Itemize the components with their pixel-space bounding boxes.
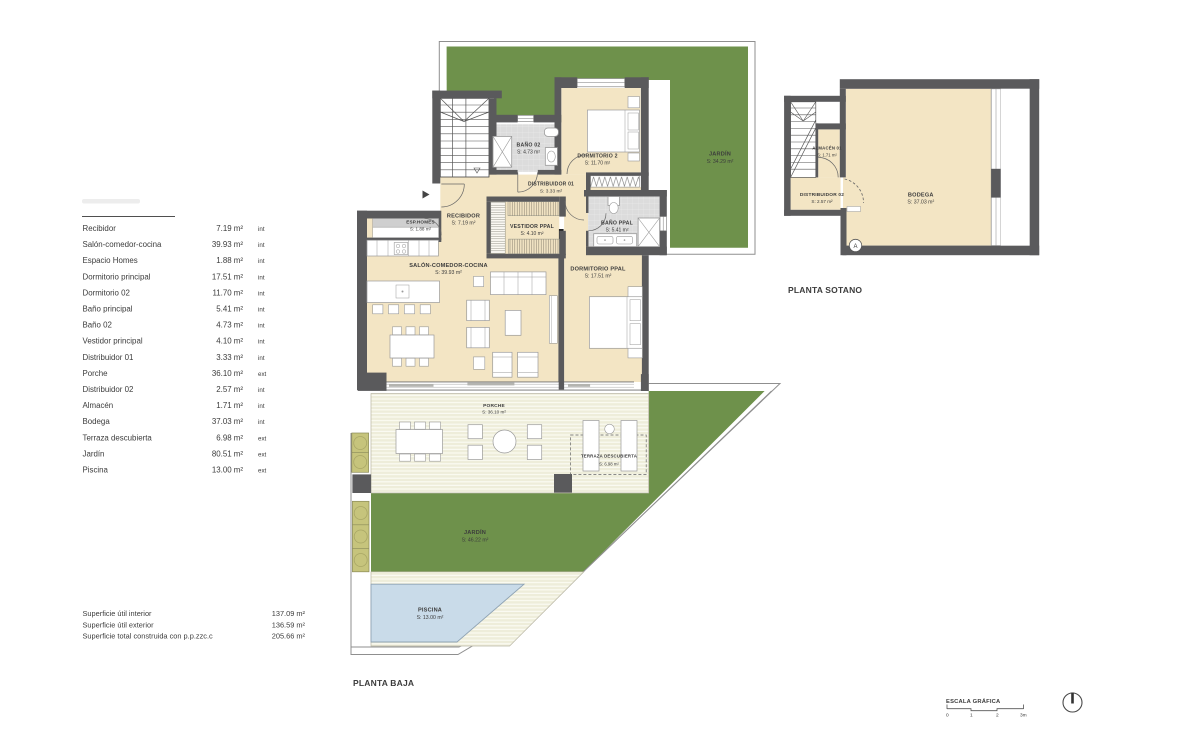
svg-text:S: 39.93 m²: S: 39.93 m² bbox=[435, 270, 462, 276]
svg-text:int: int bbox=[258, 274, 265, 281]
svg-text:5.41 m²: 5.41 m² bbox=[216, 305, 243, 314]
svg-text:int: int bbox=[258, 290, 265, 297]
svg-text:int: int bbox=[258, 307, 265, 314]
svg-text:2.57 m²: 2.57 m² bbox=[216, 385, 243, 394]
svg-text:4.73 m²: 4.73 m² bbox=[216, 321, 243, 330]
svg-text:S: 1.71 m²: S: 1.71 m² bbox=[817, 153, 837, 158]
svg-text:SALÓN-COMEDOR-COCINA: SALÓN-COMEDOR-COCINA bbox=[409, 261, 488, 269]
svg-text:int: int bbox=[258, 403, 265, 410]
svg-text:BODEGA: BODEGA bbox=[908, 193, 934, 199]
svg-text:BAÑO 02: BAÑO 02 bbox=[517, 142, 541, 149]
svg-text:S: 4.10 m²: S: 4.10 m² bbox=[520, 231, 543, 237]
svg-text:4.10 m²: 4.10 m² bbox=[216, 337, 243, 346]
svg-text:S: 3.33 m²: S: 3.33 m² bbox=[540, 189, 563, 195]
svg-text:6.98 m²: 6.98 m² bbox=[216, 433, 243, 442]
svg-text:ESCALA GRÁFICA: ESCALA GRÁFICA bbox=[946, 698, 1001, 705]
svg-text:ext: ext bbox=[258, 468, 267, 475]
svg-text:int: int bbox=[258, 258, 265, 265]
svg-text:S: 37.03 m²: S: 37.03 m² bbox=[907, 200, 934, 206]
svg-text:37.03 m²: 37.03 m² bbox=[212, 417, 244, 426]
svg-text:3.33 m²: 3.33 m² bbox=[216, 353, 243, 362]
svg-text:int: int bbox=[258, 242, 265, 249]
svg-text:2: 2 bbox=[996, 713, 999, 719]
svg-text:PLANTA BAJA: PLANTA BAJA bbox=[353, 678, 414, 688]
svg-text:S: 11.70 m²: S: 11.70 m² bbox=[585, 161, 611, 167]
svg-text:S: 46.22 m²: S: 46.22 m² bbox=[462, 538, 489, 544]
svg-text:A: A bbox=[853, 244, 857, 250]
svg-text:11.70 m²: 11.70 m² bbox=[212, 288, 243, 297]
svg-text:0: 0 bbox=[946, 713, 949, 719]
svg-text:Baño principal: Baño principal bbox=[83, 305, 133, 314]
svg-text:BAÑO PPAL: BAÑO PPAL bbox=[601, 220, 634, 227]
svg-text:DORMITORIO 2: DORMITORIO 2 bbox=[577, 154, 617, 160]
svg-text:1.71 m²: 1.71 m² bbox=[216, 401, 243, 410]
svg-text:Superficie útil exterior: Superficie útil exterior bbox=[83, 620, 155, 629]
svg-text:S: 36.10 m²: S: 36.10 m² bbox=[482, 410, 506, 415]
svg-text:1.88 m²: 1.88 m² bbox=[216, 256, 243, 265]
svg-text:13.00 m²: 13.00 m² bbox=[212, 466, 244, 475]
svg-text:Vestidor principal: Vestidor principal bbox=[83, 337, 143, 346]
svg-text:39.93 m²: 39.93 m² bbox=[212, 240, 244, 249]
svg-text:7.19 m²: 7.19 m² bbox=[216, 224, 243, 233]
svg-text:Baño 02: Baño 02 bbox=[83, 321, 112, 330]
svg-text:Almacén: Almacén bbox=[83, 401, 114, 410]
svg-text:DORMITORIO PPAL: DORMITORIO PPAL bbox=[570, 267, 626, 273]
svg-text:ext: ext bbox=[258, 371, 267, 378]
svg-text:17.51 m²: 17.51 m² bbox=[212, 272, 244, 281]
svg-text:136.59 m²: 136.59 m² bbox=[272, 620, 306, 629]
svg-text:S: 13.00 m²: S: 13.00 m² bbox=[417, 615, 444, 621]
svg-text:S: 5.41 m²: S: 5.41 m² bbox=[605, 228, 628, 234]
svg-text:DISTRIBUIDOR 01: DISTRIBUIDOR 01 bbox=[528, 182, 574, 188]
svg-text:80.51 m²: 80.51 m² bbox=[212, 449, 244, 458]
svg-text:VESTIDOR PPAL: VESTIDOR PPAL bbox=[510, 224, 555, 230]
svg-text:ext: ext bbox=[258, 435, 267, 442]
svg-text:S: 1.88 m²: S: 1.88 m² bbox=[410, 227, 432, 232]
svg-text:S: 7.19 m²: S: 7.19 m² bbox=[452, 221, 476, 227]
svg-text:S: 6.98 m²: S: 6.98 m² bbox=[599, 462, 619, 467]
svg-text:Terraza descubierta: Terraza descubierta bbox=[83, 433, 153, 442]
svg-text:Superficie útil interior: Superficie útil interior bbox=[83, 609, 153, 618]
svg-text:S: 2.57 m²: S: 2.57 m² bbox=[811, 199, 833, 204]
svg-text:S: 34.29 m²: S: 34.29 m² bbox=[707, 159, 734, 165]
svg-text:PLANTA SOTANO: PLANTA SOTANO bbox=[788, 285, 862, 295]
svg-text:3m: 3m bbox=[1020, 713, 1027, 719]
svg-text:int: int bbox=[258, 355, 265, 362]
svg-text:JARDÍN: JARDÍN bbox=[464, 528, 486, 536]
svg-text:JARDÍN: JARDÍN bbox=[709, 150, 731, 158]
svg-text:S: 4.73 m²: S: 4.73 m² bbox=[517, 150, 540, 156]
svg-text:137.09 m²: 137.09 m² bbox=[272, 609, 306, 618]
svg-text:ESP.HOMES: ESP.HOMES bbox=[406, 220, 435, 225]
svg-text:int: int bbox=[258, 387, 265, 394]
svg-text:1: 1 bbox=[970, 713, 973, 719]
svg-text:Jardín: Jardín bbox=[83, 449, 105, 458]
svg-text:ext: ext bbox=[258, 451, 267, 458]
svg-text:205.66 m²: 205.66 m² bbox=[272, 632, 306, 641]
svg-text:DISTRIBUIDOR 02: DISTRIBUIDOR 02 bbox=[800, 192, 844, 198]
svg-text:int: int bbox=[258, 419, 265, 426]
svg-text:Distribuidor 02: Distribuidor 02 bbox=[83, 385, 134, 394]
svg-text:Porche: Porche bbox=[83, 369, 109, 378]
svg-text:PORCHE: PORCHE bbox=[483, 403, 505, 409]
svg-text:Salón-comedor-cocina: Salón-comedor-cocina bbox=[83, 240, 163, 249]
svg-text:RECIBIDOR: RECIBIDOR bbox=[447, 214, 480, 220]
svg-text:int: int bbox=[258, 339, 265, 346]
svg-text:int: int bbox=[258, 226, 265, 233]
svg-text:Piscina: Piscina bbox=[83, 466, 109, 475]
svg-text:S: 17.51 m²: S: 17.51 m² bbox=[585, 274, 612, 280]
svg-text:Dormitorio 02: Dormitorio 02 bbox=[83, 288, 130, 297]
svg-text:PISCINA: PISCINA bbox=[418, 608, 442, 614]
svg-text:TERRAZA DESCUBIERTA: TERRAZA DESCUBIERTA bbox=[581, 454, 637, 459]
svg-text:Recibidor: Recibidor bbox=[83, 224, 117, 233]
svg-text:Espacio Homes: Espacio Homes bbox=[83, 256, 138, 265]
svg-text:36.10 m²: 36.10 m² bbox=[212, 369, 244, 378]
svg-text:Superficie total construida co: Superficie total construida con p.p.zzc.… bbox=[83, 632, 214, 641]
svg-text:Distribuidor 01: Distribuidor 01 bbox=[83, 353, 134, 362]
svg-text:Dormitorio principal: Dormitorio principal bbox=[83, 272, 151, 281]
svg-text:Bodega: Bodega bbox=[83, 417, 111, 426]
svg-text:int: int bbox=[258, 323, 265, 330]
svg-text:ALMACÉN 01: ALMACÉN 01 bbox=[812, 146, 842, 151]
